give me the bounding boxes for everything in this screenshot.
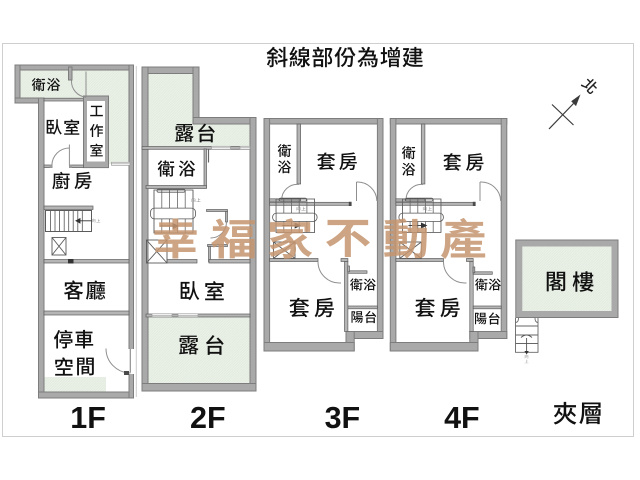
svg-text:1F: 1F (70, 401, 106, 435)
svg-text:2F: 2F (190, 401, 226, 435)
svg-text:4F: 4F (444, 401, 480, 435)
svg-text:3F: 3F (325, 401, 361, 435)
